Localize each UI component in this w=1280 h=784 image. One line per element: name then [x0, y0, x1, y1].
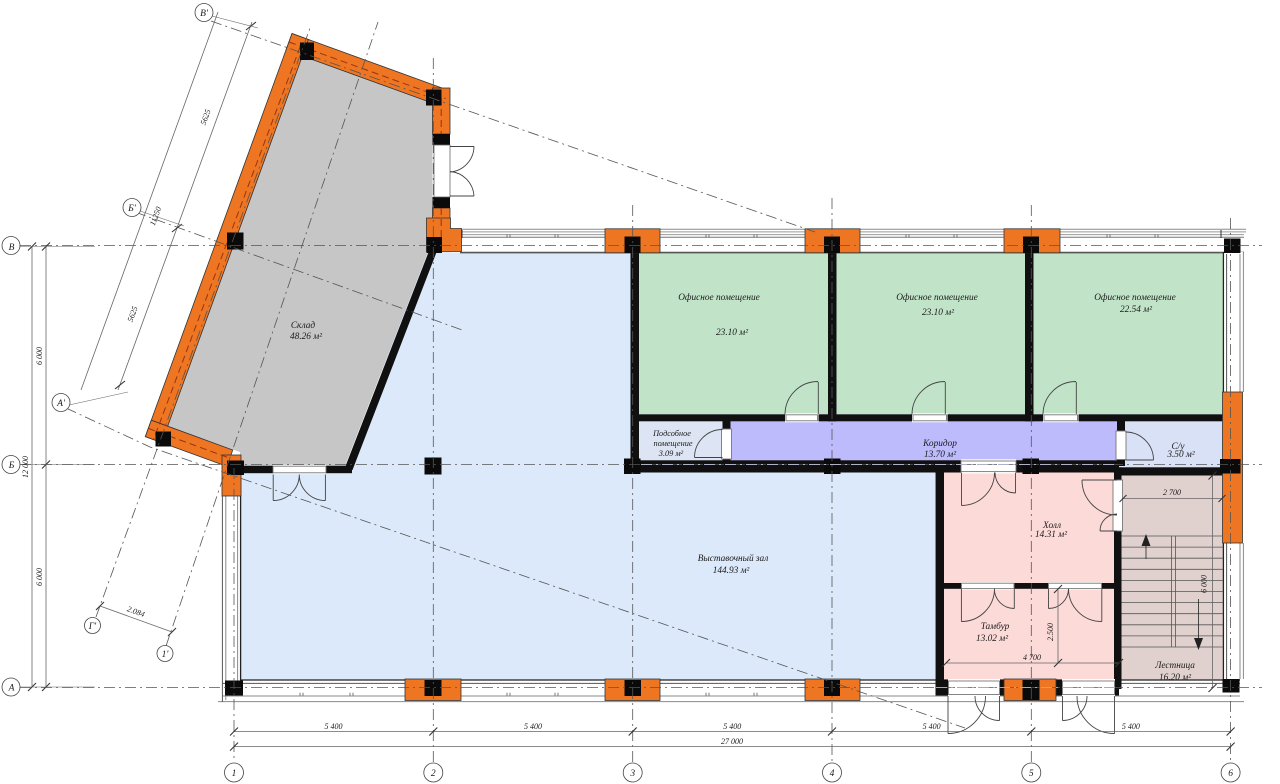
svg-text:144.93 м²: 144.93 м²	[713, 566, 750, 576]
svg-text:5 400: 5 400	[723, 722, 741, 731]
svg-text:Лестница: Лестница	[1154, 661, 1195, 671]
svg-text:48.26 м²: 48.26 м²	[290, 332, 322, 342]
svg-text:16.20 м²: 16.20 м²	[1159, 673, 1191, 683]
svg-text:22.54 м²: 22.54 м²	[1120, 305, 1152, 315]
svg-text:3: 3	[629, 769, 635, 779]
svg-text:В': В'	[200, 9, 209, 19]
svg-text:помещение: помещение	[653, 439, 692, 448]
svg-text:Выставочный зал: Выставочный зал	[698, 553, 769, 564]
svg-text:6 000: 6 000	[35, 568, 44, 586]
svg-text:4 700: 4 700	[1023, 653, 1041, 662]
svg-text:А': А'	[56, 399, 66, 409]
svg-text:5 400: 5 400	[1122, 722, 1140, 731]
svg-text:Б': Б'	[127, 204, 137, 214]
svg-text:3.50 м²: 3.50 м²	[1166, 450, 1195, 460]
svg-text:Подсобное: Подсобное	[652, 429, 691, 438]
svg-text:27 000: 27 000	[721, 737, 743, 746]
svg-text:1': 1'	[162, 650, 170, 660]
svg-text:А: А	[8, 684, 15, 694]
svg-text:23.10 м²: 23.10 м²	[716, 328, 748, 338]
svg-text:Офисное помещение: Офисное помещение	[1094, 292, 1176, 303]
svg-text:Склад: Склад	[291, 320, 316, 331]
svg-text:Офисное помещение: Офисное помещение	[896, 292, 978, 303]
svg-text:5 400: 5 400	[524, 722, 542, 731]
svg-text:12 000: 12 000	[21, 456, 30, 478]
svg-text:В: В	[9, 243, 15, 253]
svg-text:5: 5	[1029, 769, 1034, 779]
svg-text:5 400: 5 400	[325, 722, 343, 731]
svg-text:2 700: 2 700	[1163, 488, 1181, 497]
svg-text:6: 6	[1228, 769, 1233, 779]
svg-text:Коридор: Коридор	[922, 438, 957, 449]
svg-text:Тамбур: Тамбур	[981, 621, 1010, 632]
svg-text:3.09 м²: 3.09 м²	[658, 449, 684, 458]
svg-text:2.500: 2.500	[1046, 623, 1055, 641]
svg-text:Г': Г'	[88, 622, 97, 632]
svg-text:4: 4	[830, 769, 835, 779]
svg-text:6 000: 6 000	[1200, 575, 1209, 593]
svg-text:5 400: 5 400	[923, 722, 941, 731]
svg-text:14.31 м²: 14.31 м²	[1035, 530, 1067, 540]
svg-text:2: 2	[431, 769, 436, 779]
svg-text:13.02 м²: 13.02 м²	[976, 634, 1008, 644]
svg-text:23.10 м²: 23.10 м²	[922, 308, 954, 318]
svg-text:Б: Б	[8, 461, 15, 471]
svg-text:1: 1	[232, 769, 237, 779]
svg-text:13.70 м²: 13.70 м²	[924, 450, 956, 460]
svg-text:Офисное помещение: Офисное помещение	[678, 292, 760, 303]
svg-text:6 000: 6 000	[35, 347, 44, 365]
